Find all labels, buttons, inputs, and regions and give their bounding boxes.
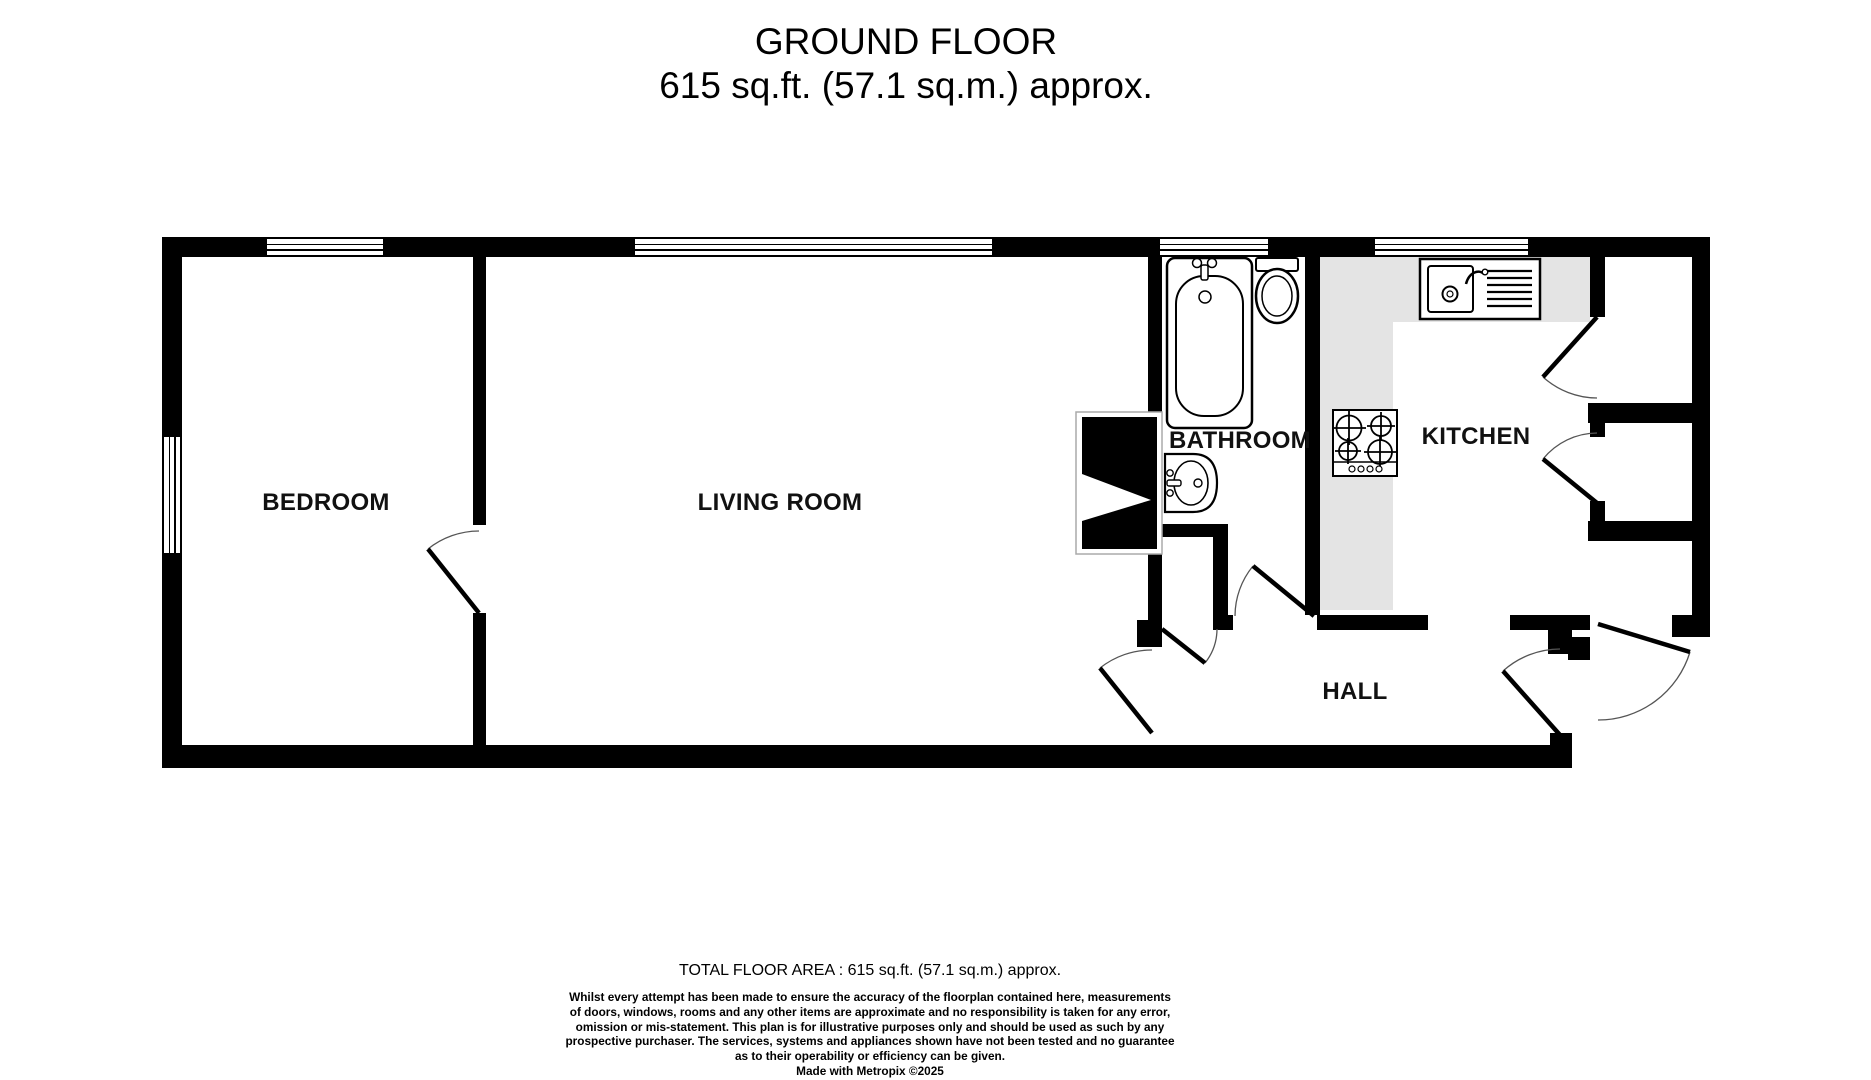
- kitchen-counter-top: [1320, 257, 1590, 322]
- kitchen-cupboard1-door-leaf: [1543, 317, 1597, 377]
- room-label-bedroom: BEDROOM: [262, 489, 389, 517]
- living-bathroom-wall: [1148, 257, 1162, 647]
- room-label-hall: HALL: [1322, 678, 1387, 706]
- plan-title: GROUND FLOOR 615 sq.ft. (57.1 sq.m.) app…: [659, 20, 1153, 108]
- wall-top-segment: [383, 237, 635, 257]
- wall-foot: [1213, 615, 1233, 630]
- bathroom-window: [1160, 237, 1268, 257]
- bedroom-window: [267, 237, 383, 257]
- bedroom-door-arc: [428, 531, 479, 549]
- wall-right: [1692, 257, 1710, 637]
- kitchen-cupboard1-door-arc: [1543, 377, 1597, 398]
- wall-stub: [1550, 733, 1572, 745]
- wall-left-segment: [162, 257, 182, 437]
- hall-cupboard-door-leaf: [1162, 629, 1205, 663]
- plan-title-line2: 615 sq.ft. (57.1 sq.m.) approx.: [659, 64, 1153, 108]
- cupboard-jamb: [1590, 501, 1605, 523]
- living-hall-door-arc: [1100, 650, 1152, 668]
- wall-top-segment: [1268, 237, 1375, 257]
- cupboard-jamb: [1590, 423, 1605, 437]
- floorplan-canvas: GROUND FLOOR 615 sq.ft. (57.1 sq.m.) app…: [0, 0, 1871, 1080]
- wall-top-segment: [162, 237, 267, 257]
- wall-top-segment: [992, 237, 1160, 257]
- room-label-living-room: LIVING ROOM: [698, 489, 863, 517]
- wall-left-segment: [162, 553, 182, 768]
- door-swings: [428, 317, 1690, 735]
- bathroom-door-arc: [1235, 566, 1253, 616]
- cupboard-divider-wall: [1588, 521, 1710, 541]
- wall-top-segment: [1528, 237, 1710, 257]
- living-hall-door-leaf: [1100, 668, 1152, 733]
- toilet-icon: [1256, 258, 1298, 323]
- plan-title-line1: GROUND FLOOR: [659, 20, 1153, 64]
- hall-cupboard-door-arc: [1205, 629, 1217, 663]
- room-label-bathroom: BATHROOM: [1169, 427, 1311, 455]
- bathtub-icon: [1167, 258, 1252, 428]
- disclaimer-line: omission or mis-statement. This plan is …: [565, 1020, 1174, 1035]
- living-room-window: [635, 237, 992, 257]
- total-floor-area: TOTAL FLOOR AREA : 615 sq.ft. (57.1 sq.m…: [565, 962, 1174, 980]
- bedroom-partition-wall: [473, 613, 486, 745]
- footer: TOTAL FLOOR AREA : 615 sq.ft. (57.1 sq.m…: [565, 962, 1174, 1079]
- kitchen-bottom-wall: [1317, 615, 1428, 630]
- bedroom-door-leaf: [428, 549, 479, 613]
- wall-bottom: [162, 745, 1572, 768]
- bathroom-bottom-wall: [1158, 524, 1228, 537]
- kitchen-window: [1375, 237, 1528, 257]
- room-label-kitchen: KITCHEN: [1422, 423, 1531, 451]
- bathroom-lobby-wall: [1213, 537, 1228, 615]
- cupboard-jamb: [1590, 257, 1605, 317]
- metropix-credit: Made with Metropix ©2025: [565, 1064, 1174, 1079]
- kitchen-cupboard2-door-arc: [1543, 433, 1597, 459]
- cupboard-divider-wall: [1588, 403, 1710, 423]
- hall-entrance-door-leaf: [1503, 671, 1560, 735]
- front-door-jamb: [1568, 637, 1590, 660]
- disclaimer-line: as to their operability or efficiency ca…: [565, 1049, 1174, 1064]
- kitchen-cupboard2-door-leaf: [1543, 459, 1597, 503]
- wall-foot: [1137, 620, 1148, 647]
- disclaimer-line: of doors, windows, rooms and any other i…: [565, 1005, 1174, 1020]
- bedroom-partition-wall: [473, 257, 486, 525]
- bedroom-side-window: [162, 437, 182, 553]
- disclaimer-line: Whilst every attempt has been made to en…: [565, 990, 1174, 1005]
- disclaimer-line: prospective purchaser. The services, sys…: [565, 1034, 1174, 1049]
- front-door-arc: [1598, 652, 1690, 720]
- basin-icon: [1165, 454, 1217, 512]
